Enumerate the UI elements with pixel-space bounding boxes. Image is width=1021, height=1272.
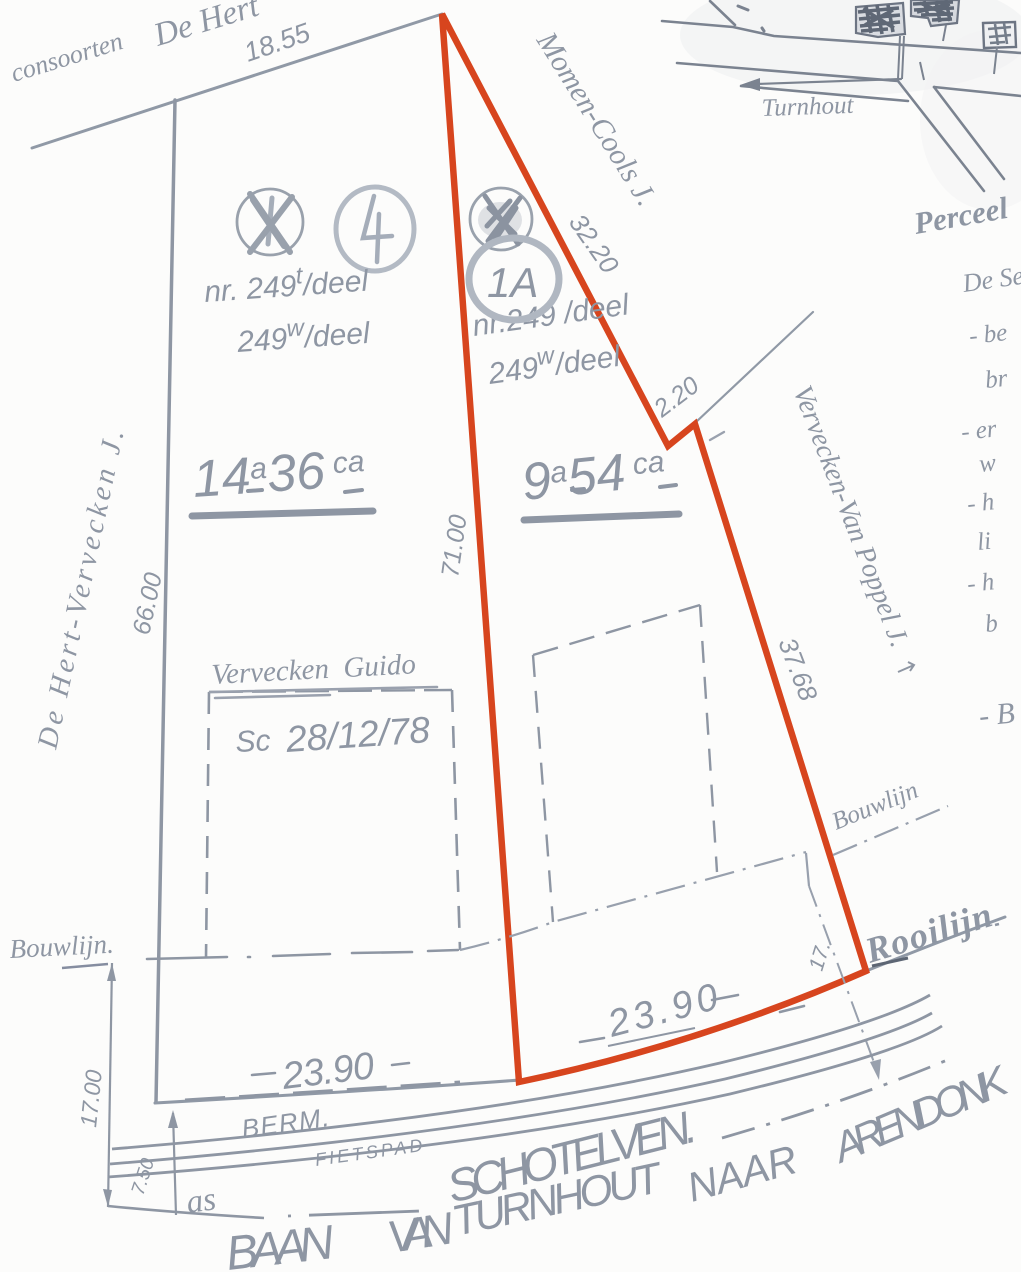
svg-text:VAN: VAN — [384, 1202, 458, 1263]
svg-text:as: as — [184, 1181, 218, 1221]
svg-text:- h: - h — [966, 568, 996, 598]
svg-text:Turnhout: Turnhout — [761, 92, 855, 122]
svg-text:Sc: Sc — [235, 724, 272, 759]
svg-text:w: w — [978, 449, 998, 478]
svg-text:li: li — [976, 528, 993, 556]
svg-text:- er: - er — [960, 415, 998, 446]
svg-text:- be: - be — [968, 319, 1009, 350]
svg-text:- B: - B — [977, 696, 1016, 733]
svg-text:1A: 1A — [487, 259, 538, 306]
svg-text:- h: - h — [966, 488, 996, 518]
svg-text:br: br — [984, 365, 1009, 394]
svg-text:Bouwlijn.: Bouwlijn. — [9, 929, 115, 964]
